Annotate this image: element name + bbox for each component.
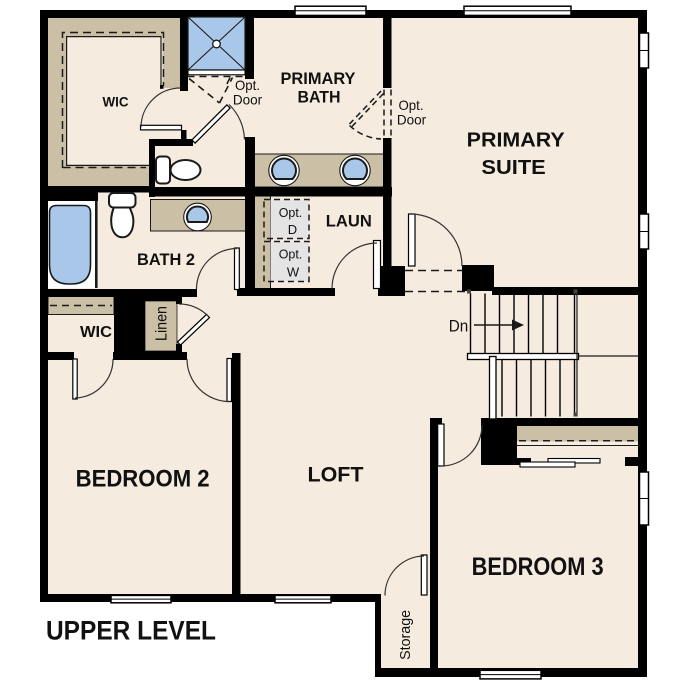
svg-text:Opt.: Opt. [279, 205, 303, 220]
svg-text:BEDROOM 2: BEDROOM 2 [76, 466, 210, 493]
svg-text:PRIMARY: PRIMARY [281, 69, 357, 88]
svg-text:BATH: BATH [298, 88, 341, 107]
svg-text:Storage: Storage [398, 610, 414, 660]
svg-text:D: D [288, 222, 297, 237]
svg-text:Opt.: Opt. [235, 78, 260, 93]
svg-text:Opt.: Opt. [399, 98, 424, 113]
svg-text:LOFT: LOFT [308, 463, 364, 487]
svg-text:LAUN: LAUN [326, 211, 372, 230]
svg-text:WIC: WIC [80, 324, 112, 341]
svg-text:PRIMARY: PRIMARY [467, 129, 565, 152]
svg-text:Dn: Dn [449, 317, 469, 336]
svg-text:W: W [287, 264, 300, 279]
svg-text:SUITE: SUITE [481, 156, 545, 179]
svg-text:Door: Door [397, 113, 427, 128]
svg-text:Opt.: Opt. [279, 247, 303, 262]
svg-text:UPPER LEVEL: UPPER LEVEL [46, 616, 216, 646]
svg-text:WIC: WIC [103, 94, 129, 110]
svg-text:Linen: Linen [154, 306, 171, 341]
svg-text:Door: Door [233, 92, 263, 107]
svg-text:BATH 2: BATH 2 [137, 250, 195, 269]
svg-text:BEDROOM 3: BEDROOM 3 [472, 553, 604, 581]
